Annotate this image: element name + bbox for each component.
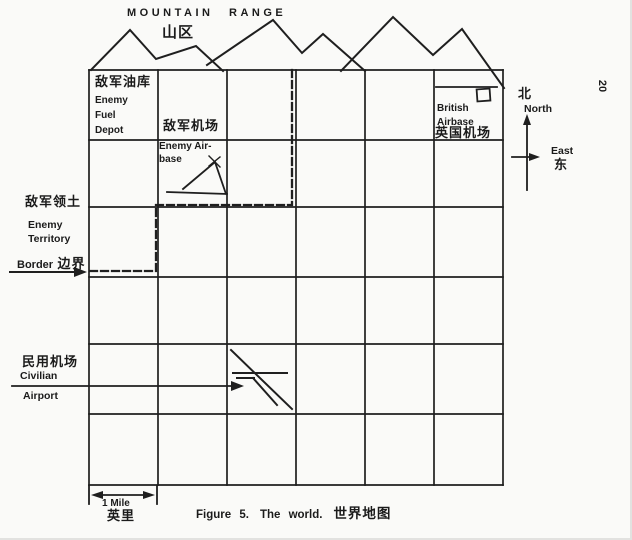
enemy-fuel-depot-label-en: Enemy Fuel Depot xyxy=(95,93,128,138)
enemy-airbase-line2: base xyxy=(159,153,211,166)
scanned-figure-page: MOUNTAIN RANGE 山区 敌军油库 Enemy Fuel Depot … xyxy=(0,0,632,540)
enemy-fuel-depot-line3: Depot xyxy=(95,123,128,138)
border-label-en: Border xyxy=(17,259,53,271)
enemy-territory-line1: Enemy xyxy=(28,218,70,232)
mountain-range-label-en: MOUNTAIN RANGE xyxy=(127,7,286,19)
figure-caption: Figure 5. The world. 世界地图 xyxy=(196,507,391,522)
enemy-airbase-label-zh: 敌军机场 xyxy=(163,119,219,133)
enemy-airbase-label-en: Enemy Air- base xyxy=(159,140,211,166)
enemy-fuel-depot-label-zh: 敌军油库 xyxy=(95,75,151,89)
enemy-airbase-line1: Enemy Air- xyxy=(159,140,211,153)
civilian-airport-line2: Airport xyxy=(23,391,58,403)
border-label: Border 边界 xyxy=(17,255,86,273)
civilian-airport-icon xyxy=(231,350,292,409)
compass-north-en: North xyxy=(524,104,552,116)
enemy-territory-label-zh: 敌军领土 xyxy=(25,195,81,209)
enemy-fuel-depot-line1: Enemy xyxy=(95,93,128,108)
british-airbase-icon xyxy=(436,87,497,101)
enemy-fuel-depot-line2: Fuel xyxy=(95,108,128,123)
compass-east-en: East xyxy=(551,146,573,158)
british-airbase-line1: British xyxy=(437,102,474,116)
figure-caption-title-zh: 世界地图 xyxy=(333,507,391,522)
figure-caption-label: Figure 5. xyxy=(196,509,249,522)
compass-icon xyxy=(512,114,540,190)
british-airbase-label-zh: 英国机场 xyxy=(435,126,491,140)
enemy-territory-line2: Territory xyxy=(28,232,70,246)
scale-label-zh: 英里 xyxy=(107,509,135,523)
figure-caption-title-en: The world. xyxy=(260,509,323,522)
mountain-range-label-zh: 山区 xyxy=(162,25,194,42)
mountain-range-outline xyxy=(91,17,504,88)
civilian-airport-line1: Civilian xyxy=(20,371,57,383)
compass-east-zh: 东 xyxy=(554,158,568,172)
civilian-airport-label-zh: 民用机场 xyxy=(22,355,78,369)
compass-north-zh: 北 xyxy=(518,87,532,101)
page-number: 20 xyxy=(596,80,608,92)
border-label-zh: 边界 xyxy=(58,256,86,271)
enemy-territory-label-en: Enemy Territory xyxy=(28,218,70,246)
